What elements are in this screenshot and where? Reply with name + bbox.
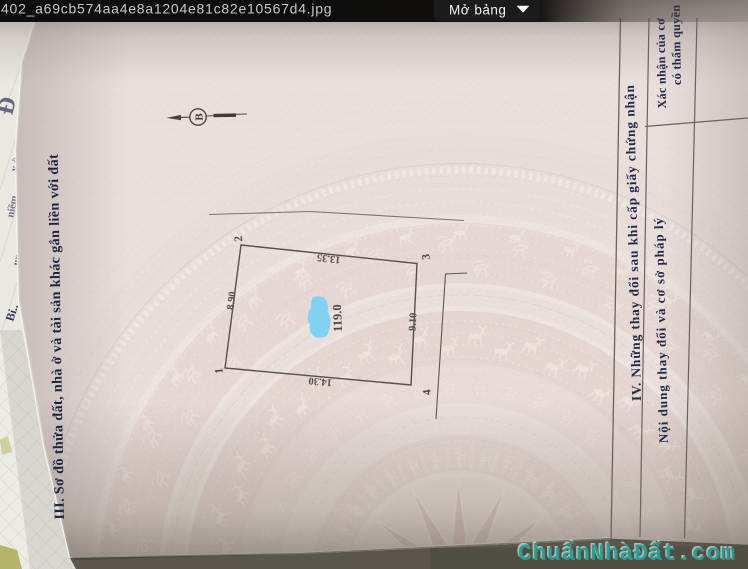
svg-text:ChuẩnNhàĐất.com: ChuẩnNhàĐất.com: [518, 540, 736, 568]
svg-text:Xác nhận của cơ: Xác nhận của cơ: [653, 18, 669, 109]
svg-text:119.0: 119.0: [330, 304, 345, 332]
svg-text:402_a69cb574aa4e8a1204e81c82e1: 402_a69cb574aa4e8a1204e81c82e10567d4.jpg: [1, 1, 332, 17]
svg-text:14.30: 14.30: [308, 375, 332, 388]
svg-text:B: B: [194, 113, 206, 121]
svg-text:Mở bảng: Mở bảng: [449, 3, 506, 18]
svg-text:9.10: 9.10: [408, 312, 420, 331]
svg-text:8.90: 8.90: [225, 291, 238, 311]
